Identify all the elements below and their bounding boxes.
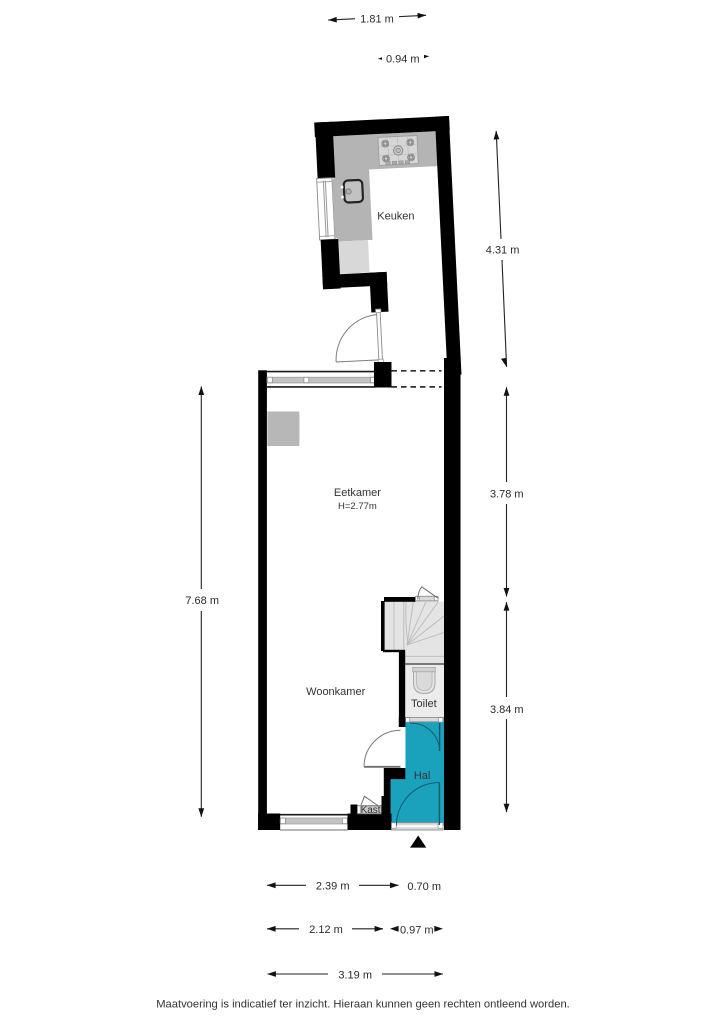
- svg-text:0.70 m: 0.70 m: [407, 881, 441, 893]
- svg-text:Kast: Kast: [361, 805, 381, 816]
- svg-text:Toilet: Toilet: [411, 698, 437, 710]
- svg-text:3.84 m: 3.84 m: [490, 704, 524, 716]
- svg-text:Maatvoering is indicatief ter: Maatvoering is indicatief ter inzicht. H…: [156, 999, 570, 1011]
- svg-text:Woonkamer: Woonkamer: [306, 686, 365, 698]
- svg-text:2.39 m: 2.39 m: [316, 881, 350, 893]
- svg-text:0.97 m: 0.97 m: [400, 924, 434, 936]
- svg-text:H=2.77m: H=2.77m: [338, 501, 377, 512]
- svg-text:2.12 m: 2.12 m: [309, 924, 343, 936]
- svg-text:3.19 m: 3.19 m: [338, 969, 372, 981]
- svg-text:Keuken: Keuken: [377, 210, 414, 222]
- svg-text:3.78 m: 3.78 m: [490, 488, 524, 500]
- svg-text:7.68 m: 7.68 m: [185, 595, 219, 607]
- svg-text:0.94 m: 0.94 m: [386, 54, 420, 66]
- svg-text:4.31 m: 4.31 m: [486, 244, 520, 256]
- svg-text:1.81 m: 1.81 m: [360, 13, 394, 25]
- svg-text:Eetkamer: Eetkamer: [334, 487, 381, 499]
- svg-text:Hal: Hal: [414, 770, 431, 782]
